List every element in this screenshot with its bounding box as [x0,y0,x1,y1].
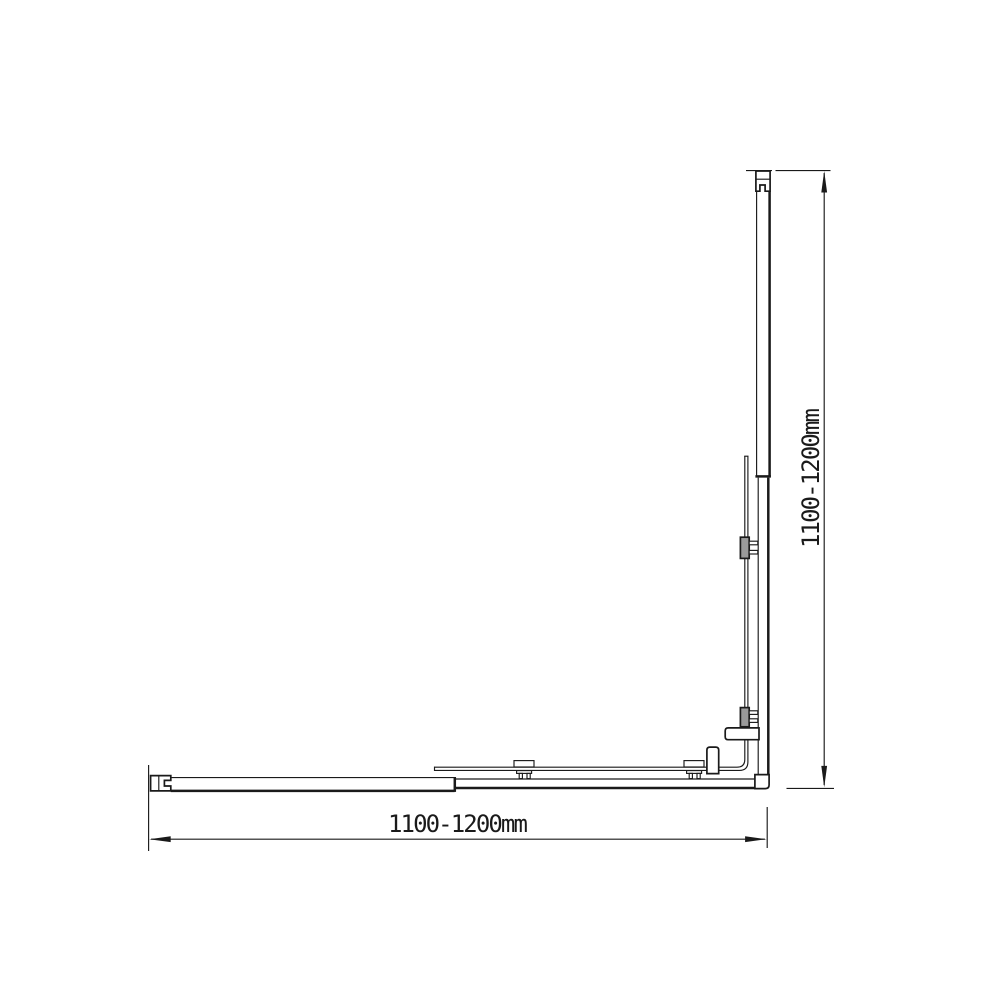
glass-clamp-right-upper [740,537,757,558]
wall-profile-top [756,171,770,191]
glass-outer-line [435,456,745,767]
height-dimension-arrow-down [821,766,827,788]
door-knob-bottom [707,747,719,774]
width-dimension-arrow-right [745,836,767,842]
height-dimension-arrow-up [821,171,827,193]
height-dimension-label: 1100-1200mm [798,404,824,554]
glass-panels [435,456,749,771]
corner-post [755,775,769,789]
technical-drawing-canvas: 1100-1200mm 1100-1200mm [0,0,1000,1000]
bottom-side-assembly [151,747,755,792]
width-dimension-arrow-left [149,836,171,842]
glass-inner-line [435,456,748,770]
glass-clamp-bottom-left [514,761,534,779]
door-knob-right [725,728,759,740]
glass-clamp-right-lower [740,708,757,727]
wall-profile-left [151,776,171,791]
glass-clamp-bottom-right [684,761,704,779]
width-dimension-label: 1100-1200mm [382,811,532,837]
shower-enclosure-plan-svg [0,0,1000,1000]
